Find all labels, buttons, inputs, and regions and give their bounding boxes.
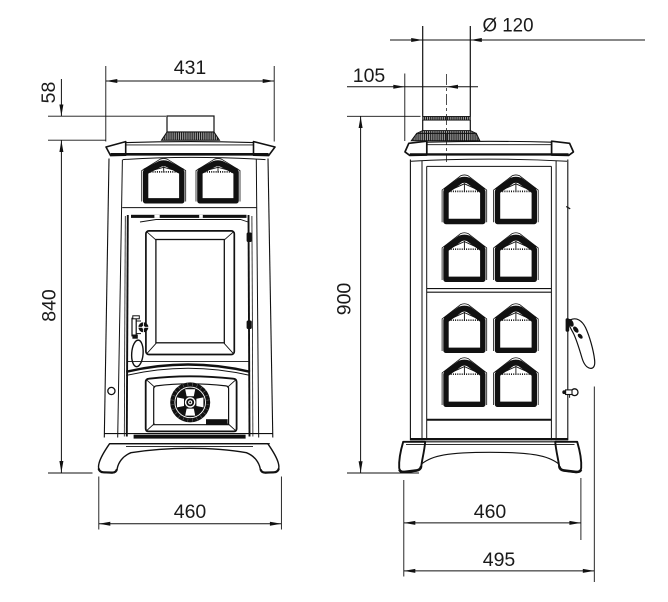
svg-text:900: 900 [334,283,356,316]
svg-text:431: 431 [174,57,207,79]
svg-text:Ø 120: Ø 120 [483,16,534,37]
svg-text:460: 460 [474,501,507,523]
svg-text:58: 58 [38,82,60,104]
svg-text:105: 105 [353,65,386,87]
svg-text:460: 460 [174,501,207,523]
svg-text:495: 495 [483,549,516,571]
svg-text:840: 840 [39,289,61,322]
